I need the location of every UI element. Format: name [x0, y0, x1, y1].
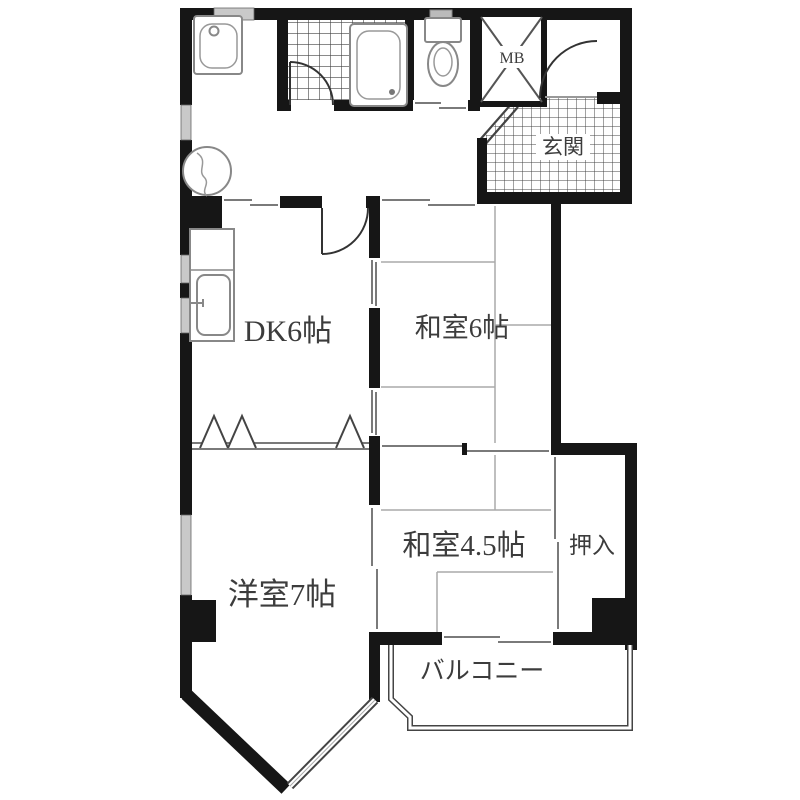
entrance-door-arc — [540, 41, 597, 98]
washbasin-icon — [194, 16, 242, 74]
mb-label: MB — [500, 50, 525, 67]
washroom-window — [181, 105, 191, 140]
bathtub-icon — [350, 24, 407, 106]
genkan-label: 玄関 — [542, 135, 584, 159]
dk-door-arc — [322, 208, 368, 254]
balcony-label: バルコニー — [420, 658, 545, 685]
diagonal-wall — [186, 694, 286, 789]
water-heater-icon — [183, 147, 231, 196]
western-room-window — [181, 515, 191, 595]
tatami-lines — [381, 206, 553, 632]
yoshitsu-label: 洋室7帖 — [228, 577, 337, 612]
diagonal-window — [290, 700, 375, 786]
accordion-partition — [192, 416, 369, 449]
oshiire-label: 押入 — [569, 533, 615, 558]
dk-label: DK6帖 — [244, 315, 332, 348]
washitsu6-label: 和室6帖 — [415, 313, 510, 343]
floorplan-svg: MB 玄関 DK6帖 和室6帖 和室4.5帖 押入 洋室7帖 バルコニー — [0, 0, 800, 800]
washitsu45-label: 和室4.5帖 — [402, 529, 525, 562]
floorplan-image: MB 玄関 DK6帖 和室6帖 和室4.5帖 押入 洋室7帖 バルコニー — [0, 0, 800, 800]
kitchen-sink-icon — [190, 229, 234, 341]
toilet-icon — [425, 10, 461, 86]
